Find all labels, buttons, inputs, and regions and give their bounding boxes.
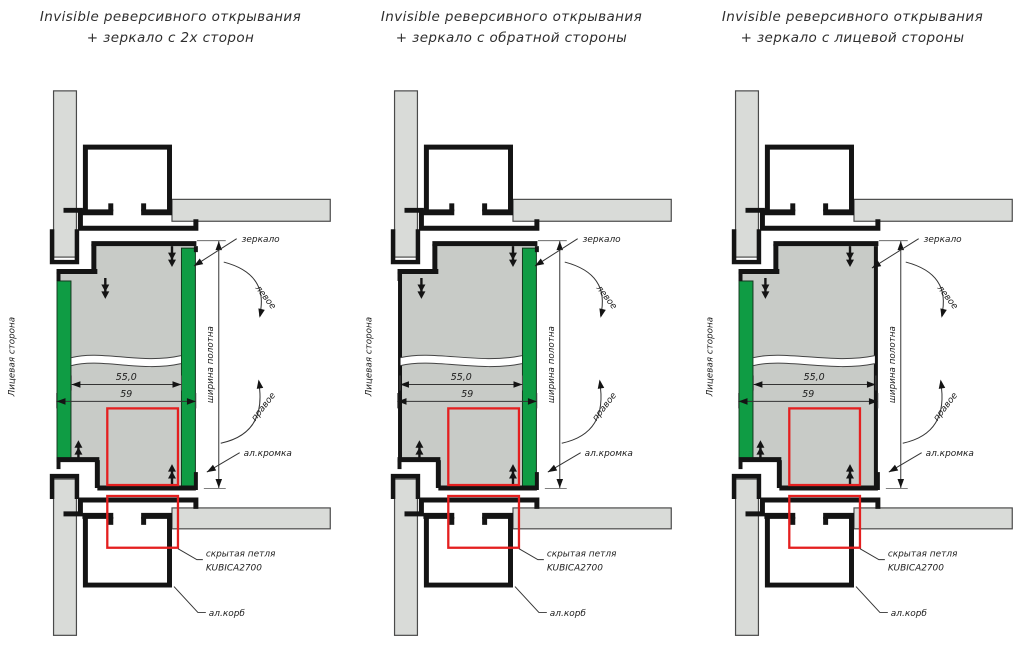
- alu-box-label: ал.корб: [550, 609, 587, 619]
- wall-bottom-right: [172, 508, 330, 529]
- hidden-hinge-label-line1: скрытая петля: [206, 549, 276, 559]
- wall-bottom-right: [854, 508, 1012, 529]
- dimension-55-label: 55,0: [451, 372, 472, 383]
- panel-title-line1: Invisible реверсивного открывания: [40, 7, 301, 28]
- hidden-hinge-label-line2: KUBICA2700: [888, 563, 944, 573]
- section-drawing-back-side: 55,0 59 ширина полотна зеркало: [341, 63, 682, 649]
- leaf-width-dimension: ширина полотна: [197, 240, 226, 488]
- swing-left-label: левое: [934, 283, 960, 312]
- panel-title: Invisible реверсивного открывания + зерк…: [40, 0, 301, 63]
- section-drawing-both-sides: 55,0 59 ширина полотна зеркало: [0, 63, 341, 649]
- leaf-width-dimension: ширина полотна: [538, 240, 567, 488]
- panel-mirror-front-side: Invisible реверсивного открывания + зерк…: [682, 0, 1023, 649]
- alu-box-label: ал.корб: [891, 609, 928, 619]
- panel-title-line2: + зеркало с обратной стороны: [381, 28, 642, 49]
- wall-upper: [736, 91, 759, 257]
- panel-title-line2: + зеркало с 2х сторон: [40, 28, 301, 49]
- panel-title-line1: Invisible реверсивного открывания: [381, 7, 642, 28]
- wall-top-right: [513, 199, 671, 221]
- mirror-label: зеркало: [583, 235, 622, 245]
- swing-right-label: правое: [932, 390, 961, 423]
- dimension-59-label: 59: [802, 389, 814, 400]
- wall-lower: [395, 479, 418, 635]
- hidden-hinge-label-line1: скрытая петля: [888, 549, 958, 559]
- wall-top-right: [854, 199, 1012, 221]
- front-side-label: Лицевая сторона: [8, 317, 18, 397]
- hidden-hinge-label-line1: скрытая петля: [547, 549, 617, 559]
- hidden-hinge-label-line2: KUBICA2700: [206, 563, 262, 573]
- dimension-59-label: 59: [461, 389, 473, 400]
- mirror-strip-back: [181, 248, 195, 486]
- wall-lower: [736, 479, 759, 635]
- leaf-width-label: ширина полотна: [206, 326, 216, 403]
- panel-mirror-both-sides: Invisible реверсивного открывания + зерк…: [0, 0, 341, 649]
- mirror-label: зеркало: [924, 235, 963, 245]
- alu-box-label: ал.корб: [209, 609, 246, 619]
- wall-upper: [395, 91, 418, 257]
- leaf-width-label: ширина полотна: [888, 326, 898, 403]
- leaf-width-dimension: ширина полотна: [879, 240, 908, 488]
- mirror-strip-front: [739, 281, 753, 459]
- mirror-strip-front: [57, 281, 71, 459]
- wall-bottom-right: [513, 508, 671, 529]
- swing-right-label: правое: [591, 390, 620, 423]
- wall-top-right: [172, 199, 330, 221]
- swing-left-label: левое: [593, 283, 619, 312]
- drawing-sheet: Invisible реверсивного открывания + зерк…: [0, 0, 1024, 649]
- alu-edge-label: ал.кромка: [585, 449, 633, 459]
- panel-title-line2: + зеркало с лицевой стороны: [722, 28, 983, 49]
- panel-title: Invisible реверсивного открывания + зерк…: [722, 0, 983, 63]
- dimension-55-label: 55,0: [804, 372, 825, 383]
- alu-edge-label: ал.кромка: [926, 449, 974, 459]
- dimension-55-label: 55,0: [116, 372, 137, 383]
- swing-right-label: правое: [250, 390, 279, 423]
- mirror-label: зеркало: [242, 235, 281, 245]
- panel-mirror-back-side: Invisible реверсивного открывания + зерк…: [341, 0, 682, 649]
- swing-left-label: левое: [252, 283, 278, 312]
- alu-edge-label: ал.кромка: [244, 449, 292, 459]
- hidden-hinge-label-line2: KUBICA2700: [547, 563, 603, 573]
- panel-title: Invisible реверсивного открывания + зерк…: [381, 0, 642, 63]
- front-side-label: Лицевая сторона: [365, 317, 375, 397]
- wall-upper: [54, 91, 77, 257]
- section-drawing-front-side: 55,0 59 ширина полотна зеркало: [682, 63, 1023, 649]
- leaf-width-label: ширина полотна: [547, 326, 557, 403]
- dimension-59-label: 59: [120, 389, 132, 400]
- panel-title-line1: Invisible реверсивного открывания: [722, 7, 983, 28]
- front-side-label: Лицевая сторона: [706, 317, 716, 397]
- mirror-strip-back: [522, 248, 536, 486]
- wall-lower: [54, 479, 77, 635]
